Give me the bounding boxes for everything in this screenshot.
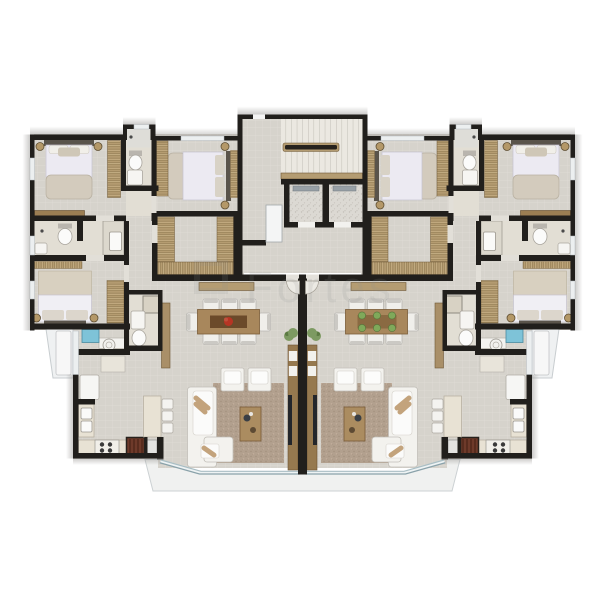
svg-text:Fortes: Fortes — [246, 263, 395, 312]
